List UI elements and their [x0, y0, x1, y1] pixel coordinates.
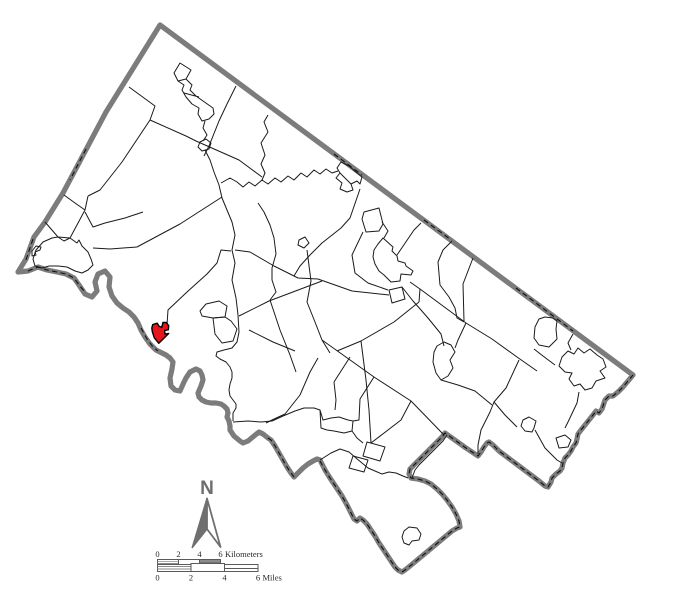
svg-text:N: N: [200, 478, 214, 499]
svg-text:6: 6: [256, 573, 260, 583]
svg-text:0: 0: [155, 573, 159, 583]
svg-text:4: 4: [197, 549, 202, 559]
svg-text:6: 6: [218, 549, 222, 559]
svg-text:2: 2: [189, 573, 193, 583]
svg-text:0: 0: [155, 549, 159, 559]
svg-text:Kilometers: Kilometers: [225, 549, 263, 559]
svg-text:Miles: Miles: [263, 573, 282, 583]
svg-text:2: 2: [176, 549, 180, 559]
svg-text:4: 4: [222, 573, 227, 583]
